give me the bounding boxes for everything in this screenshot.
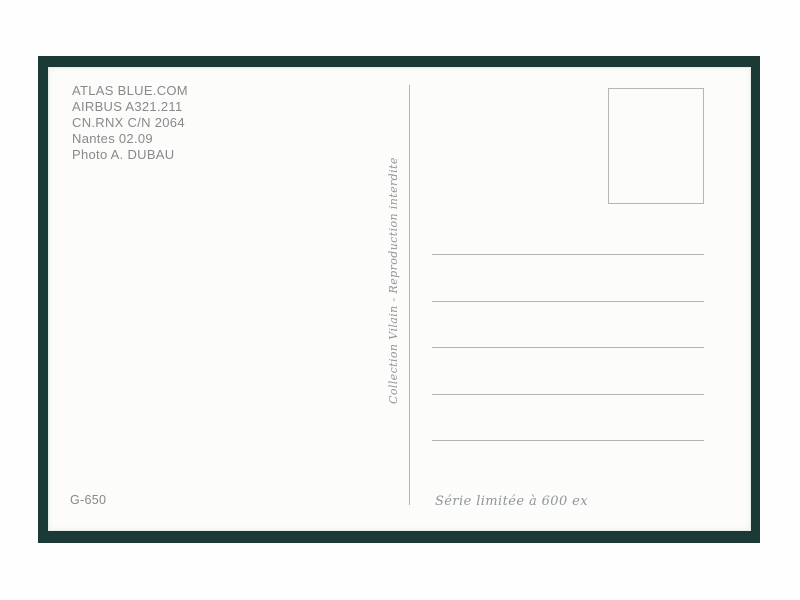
vertical-divider: [409, 85, 410, 505]
address-line: [432, 301, 704, 302]
address-lines: [432, 67, 704, 531]
info-line-aircraft: AIRBUS A321.211: [72, 99, 188, 115]
publisher-credit: Collection Vilain - Reproduction interdi…: [387, 194, 400, 404]
edition-note: Série limitée à 600 ex: [435, 494, 588, 509]
address-line: [432, 394, 704, 395]
address-line: [432, 440, 704, 441]
postcard-back: ATLAS BLUE.COM AIRBUS A321.211 CN.RNX C/…: [48, 67, 751, 531]
info-block: ATLAS BLUE.COM AIRBUS A321.211 CN.RNX C/…: [72, 83, 188, 163]
reference-code: G-650: [70, 493, 106, 507]
postcard-frame: ATLAS BLUE.COM AIRBUS A321.211 CN.RNX C/…: [38, 56, 760, 543]
info-line-location: Nantes 02.09: [72, 131, 188, 147]
info-line-photographer: Photo A. DUBAU: [72, 147, 188, 163]
scanned-page: ATLAS BLUE.COM AIRBUS A321.211 CN.RNX C/…: [0, 0, 800, 600]
address-line: [432, 347, 704, 348]
address-line: [432, 254, 704, 255]
info-line-registration: CN.RNX C/N 2064: [72, 115, 188, 131]
info-line-title: ATLAS BLUE.COM: [72, 83, 188, 99]
